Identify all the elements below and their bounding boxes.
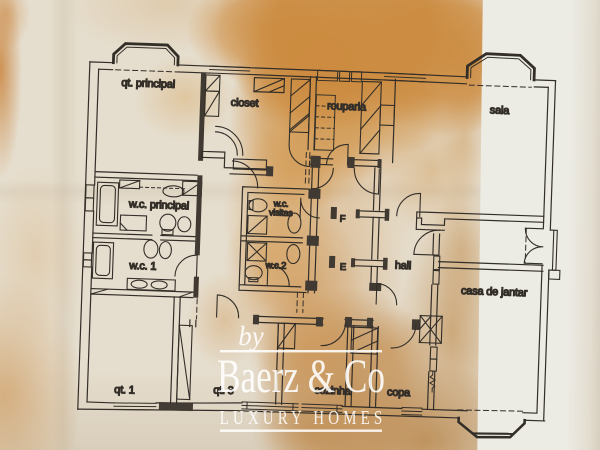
svg-text:Baerz & Co: Baerz & Co: [217, 351, 385, 403]
svg-text:by: by: [238, 321, 264, 351]
svg-text:LUXURY HOMES: LUXURY HOMES: [220, 406, 387, 429]
